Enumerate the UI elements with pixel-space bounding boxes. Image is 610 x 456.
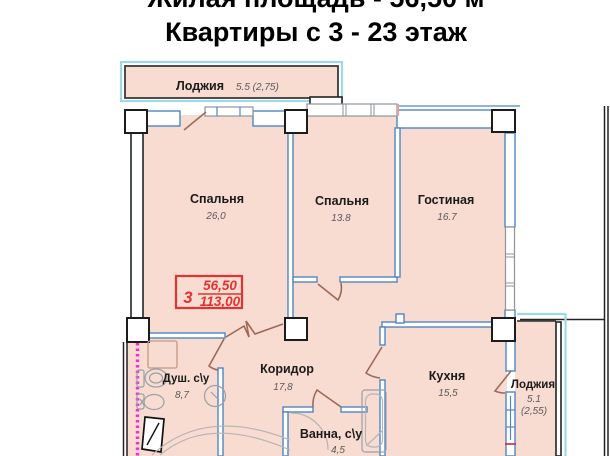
floorplan-page: Жилая площадь - 56,50 м Квартиры с 3 - 2…: [0, 0, 610, 456]
value-shower-wc: 8,7: [175, 390, 189, 401]
value-loggia-top: 5.5 (2,75): [236, 82, 279, 93]
value-bedroom-large: 26,0: [205, 211, 226, 222]
label-loggia-top: Лоджия: [176, 79, 224, 93]
value-loggia-right: 5.1: [527, 394, 541, 405]
label-bedroom-large: Спальня: [190, 192, 244, 206]
value-bedroom-small: 13.8: [331, 213, 351, 224]
label-loggia-right: Лоджия: [511, 379, 555, 391]
label-living: Гостиная: [418, 193, 475, 207]
label-bath-wc: Ванна, c\у: [300, 427, 362, 441]
floorplan-svg: 3 56,50 113,00 Лоджия 5.5 (2,75) Спальня…: [0, 0, 610, 456]
value-kitchen: 15,5: [438, 388, 458, 399]
label-corridor: Коридор: [260, 362, 314, 376]
label-kitchen: Кухня: [429, 369, 466, 383]
stamp-living-area: 56,50: [203, 278, 237, 293]
value-living: 16.7: [437, 212, 457, 223]
label-bedroom-small: Спальня: [315, 194, 369, 208]
label-shower-wc: Душ. c\у: [163, 373, 210, 385]
value-bath-wc: 4,5: [331, 445, 345, 456]
value-corridor: 17,8: [273, 382, 293, 393]
stamp-total-area: 113,00: [200, 294, 241, 309]
stamp-rooms-count: 3: [183, 289, 192, 307]
value-loggia-right-alt: (2,55): [521, 406, 547, 417]
